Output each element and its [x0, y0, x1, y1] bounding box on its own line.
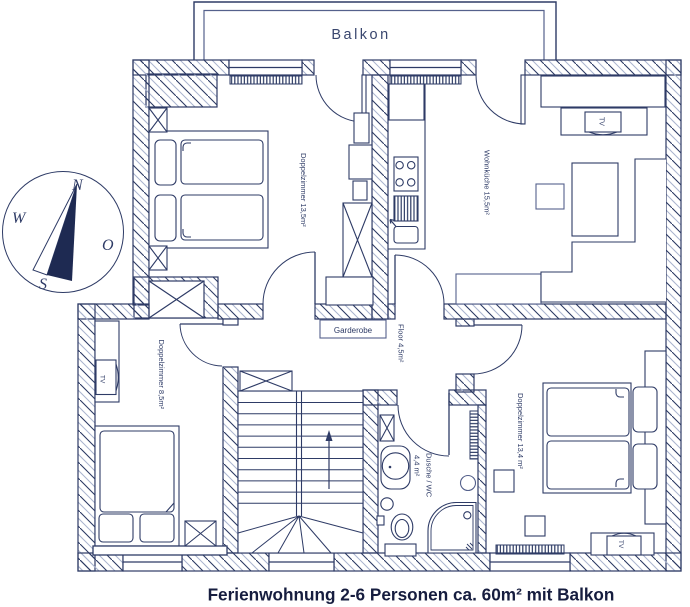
svg-text:Wohnküche 15,5m²: Wohnküche 15,5m²	[483, 150, 492, 215]
svg-text:Balkon: Balkon	[331, 27, 390, 43]
svg-text:4,4 m²: 4,4 m²	[413, 455, 422, 477]
svg-text:S: S	[39, 276, 47, 293]
svg-text:N: N	[71, 177, 84, 194]
svg-text:Floor 4,5m²: Floor 4,5m²	[397, 324, 406, 363]
svg-text:Doppelzimmer 8,5m²: Doppelzimmer 8,5m²	[157, 340, 166, 410]
svg-text:Doppelzimmer 13,4 m²: Doppelzimmer 13,4 m²	[516, 393, 525, 469]
svg-text:TV: TV	[99, 375, 106, 384]
svg-text:TV: TV	[598, 117, 605, 126]
svg-text:Ferienwohnung 2-6 Personen ca.: Ferienwohnung 2-6 Personen ca. 60m² mit …	[208, 585, 615, 605]
svg-text:Doppelzimmer 13,5m²: Doppelzimmer 13,5m²	[299, 153, 308, 227]
svg-text:W: W	[12, 210, 27, 227]
svg-text:O: O	[102, 237, 114, 254]
svg-text:TV: TV	[617, 540, 624, 549]
svg-text:Garderobe: Garderobe	[334, 326, 373, 335]
svg-text:Dusche / WC: Dusche / WC	[425, 453, 434, 498]
